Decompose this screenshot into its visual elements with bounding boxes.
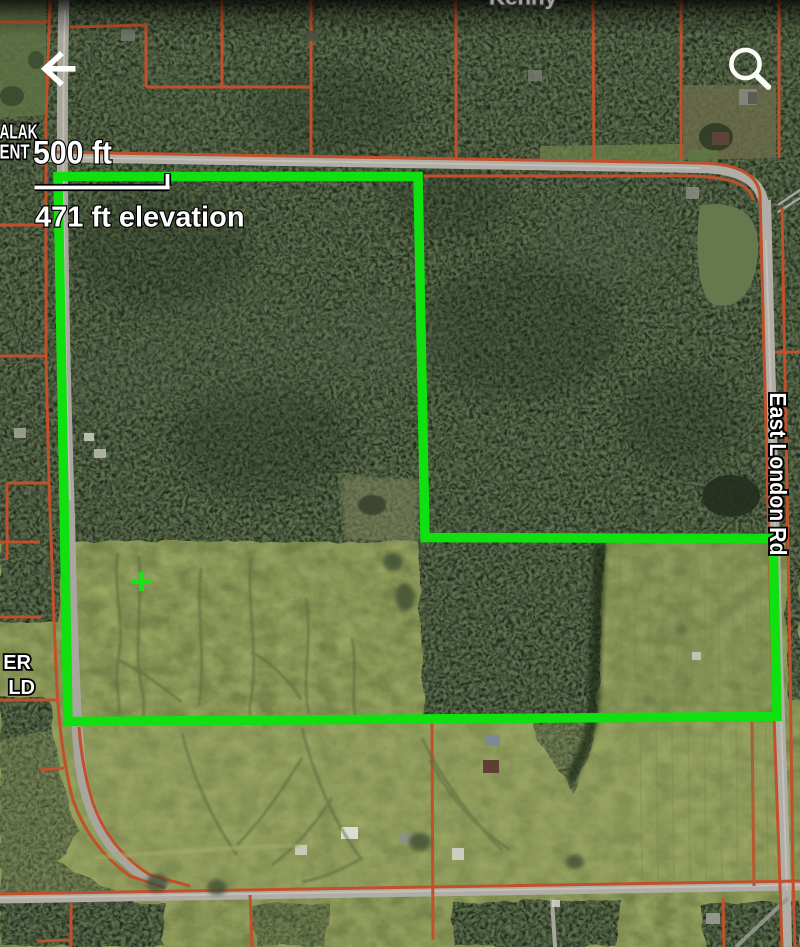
svg-text:East London Rd: East London Rd (765, 393, 791, 556)
svg-text:ER: ER (3, 652, 31, 674)
svg-text:471 ft elevation: 471 ft elevation (35, 202, 245, 234)
svg-text:500 ft: 500 ft (33, 135, 112, 171)
svg-text:LD: LD (8, 677, 35, 699)
svg-text:Kenny: Kenny (489, 0, 557, 10)
svg-text:ENT: ENT (0, 142, 30, 164)
